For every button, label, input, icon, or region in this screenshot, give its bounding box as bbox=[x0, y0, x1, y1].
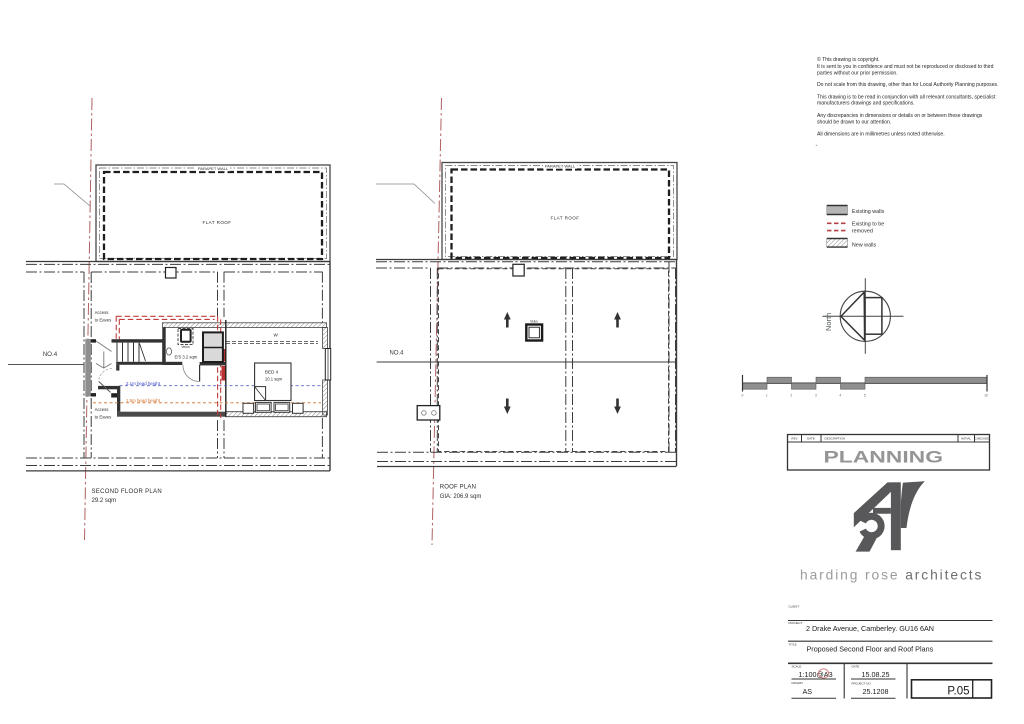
svg-text:BED 4: BED 4 bbox=[265, 370, 279, 375]
svg-text:1.5m head height: 1.5m head height bbox=[126, 398, 161, 403]
svg-text:TITLE: TITLE bbox=[789, 643, 797, 647]
svg-text:Velux: Velux bbox=[181, 345, 190, 349]
svg-text:© This drawing is copyright.: © This drawing is copyright. bbox=[817, 56, 880, 63]
svg-text:All dimensions are in millimet: All dimensions are in millimetres unless… bbox=[817, 132, 945, 138]
svg-text:CHECKED: CHECKED bbox=[975, 437, 991, 441]
svg-text:Existing walls: Existing walls bbox=[852, 209, 885, 215]
svg-text:SCALE: SCALE bbox=[792, 665, 802, 669]
svg-text:This drawing is to be read in: This drawing is to be read in conjunctio… bbox=[817, 95, 996, 101]
svg-text:15.08.25: 15.08.25 bbox=[862, 670, 890, 679]
svg-text:Access: Access bbox=[95, 407, 109, 412]
svg-text:AS: AS bbox=[803, 687, 813, 696]
svg-text:North: North bbox=[824, 313, 833, 331]
svg-text:P.05: P.05 bbox=[947, 685, 969, 697]
svg-text:parties without our prior perm: parties without our prior permission. bbox=[817, 71, 898, 77]
svg-text:ROOF PLAN: ROOF PLAN bbox=[440, 485, 476, 491]
svg-text:removed: removed bbox=[852, 229, 873, 235]
svg-text:5: 5 bbox=[864, 394, 866, 398]
svg-text:NO.4: NO.4 bbox=[390, 351, 405, 357]
svg-text:29.2 sqm: 29.2 sqm bbox=[92, 498, 117, 504]
svg-text:25.1208: 25.1208 bbox=[863, 687, 889, 696]
svg-text:New walls: New walls bbox=[852, 243, 877, 249]
svg-text:Do not scale from this drawing: Do not scale from this drawing, other th… bbox=[817, 82, 999, 88]
svg-text:Proposed Second Floor and Roof: Proposed Second Floor and Roof Plans bbox=[807, 645, 934, 654]
svg-text:PROJECT: PROJECT bbox=[789, 621, 803, 625]
svg-text:Any discrepancies in dimension: Any discrepancies in dimensions or detai… bbox=[817, 113, 983, 119]
svg-text:DATE: DATE bbox=[807, 437, 815, 441]
svg-text:to Eaves: to Eaves bbox=[95, 318, 112, 323]
svg-text:NO.4: NO.4 bbox=[43, 351, 58, 358]
svg-text:DESCRIPTION: DESCRIPTION bbox=[825, 437, 846, 441]
svg-text:CLIENT: CLIENT bbox=[789, 605, 800, 609]
svg-text:Access: Access bbox=[95, 310, 109, 315]
svg-text:PLANNING: PLANNING bbox=[824, 448, 944, 467]
svg-text:4: 4 bbox=[839, 394, 841, 398]
svg-text:FLAT ROOF: FLAT ROOF bbox=[203, 220, 232, 225]
svg-text:2 Drake Avenue, Camberley. GU1: 2 Drake Avenue, Camberley. GU16 6AN bbox=[806, 624, 934, 633]
svg-text:PARAPET WALL: PARAPET WALL bbox=[198, 166, 229, 171]
svg-text:should be drawn to our attenti: should be drawn to our attention. bbox=[817, 119, 891, 125]
svg-text:2.1m head height: 2.1m head height bbox=[126, 381, 161, 386]
svg-text:INITIAL: INITIAL bbox=[961, 437, 972, 441]
svg-text:1: 1 bbox=[766, 394, 768, 398]
svg-text:harding rose architects: harding rose architects bbox=[800, 568, 983, 583]
svg-text:2: 2 bbox=[790, 394, 792, 398]
svg-text:PARAPET WALL: PARAPET WALL bbox=[545, 164, 576, 169]
svg-text:3: 3 bbox=[815, 394, 817, 398]
svg-text:DATE: DATE bbox=[852, 665, 860, 669]
svg-text:manufacturers drawings and spe: manufacturers drawings and specification… bbox=[817, 101, 915, 107]
svg-text:SECOND FLOOR PLAN: SECOND FLOOR PLAN bbox=[92, 489, 162, 495]
svg-text:DRAWN: DRAWN bbox=[792, 681, 803, 685]
svg-text:Velux: Velux bbox=[530, 320, 538, 324]
svg-text:It is sent to you in confidenc: It is sent to you in confidence and must… bbox=[817, 64, 994, 70]
svg-text:REV: REV bbox=[791, 437, 797, 441]
svg-text:Existing to be: Existing to be bbox=[852, 221, 884, 227]
svg-text:PROJECT NO: PROJECT NO bbox=[852, 681, 872, 685]
svg-text:10: 10 bbox=[984, 394, 988, 398]
svg-text:0: 0 bbox=[742, 394, 744, 398]
svg-text:FLAT ROOF: FLAT ROOF bbox=[551, 216, 580, 221]
svg-text:to Eaves: to Eaves bbox=[95, 415, 112, 420]
svg-text:GIA: 206.9 sqm: GIA: 206.9 sqm bbox=[440, 494, 482, 500]
svg-text:E/S 3.2 sqm: E/S 3.2 sqm bbox=[175, 355, 198, 360]
svg-text:10.1 sqm: 10.1 sqm bbox=[265, 377, 283, 382]
